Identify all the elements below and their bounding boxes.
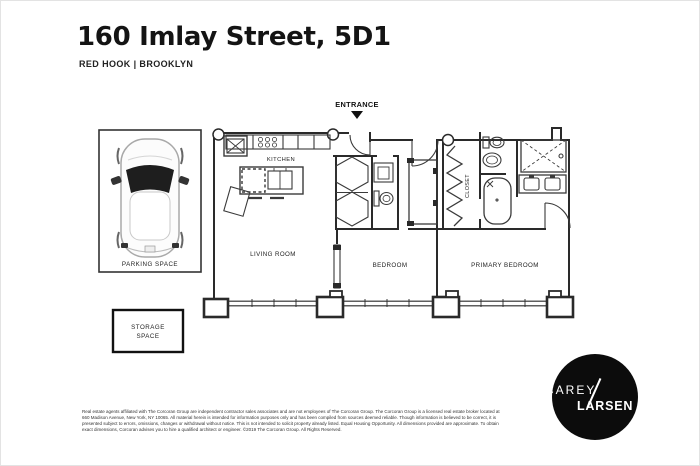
logo-line2: LARSEN: [577, 399, 633, 413]
shower: [521, 140, 566, 172]
disclaimer-line: exact dimensions, Corcoran advises you t…: [82, 427, 500, 433]
bifold-closet-top: [336, 157, 368, 191]
bedroom-label: BEDROOM: [373, 262, 408, 269]
bedroom-door: [412, 140, 438, 166]
floorplan-page: 160 Imlay Street, 5D1 RED HOOK | BROOKLY…: [0, 0, 700, 466]
entrance-door: [350, 135, 370, 155]
primary-bath-fixtures: [483, 137, 566, 224]
car-top-view-illustration: [110, 139, 189, 257]
disclaimer-line: presented subject to errors, omissions, …: [82, 421, 500, 427]
hanging-closet-rod: [447, 146, 462, 226]
parking-space: PARKING SPACE: [99, 130, 201, 272]
storage-space-label-line1: STORAGE: [131, 324, 165, 331]
windshield: [126, 165, 174, 193]
kitchen-fixtures: [224, 135, 330, 216]
apartment-walls: [214, 128, 569, 299]
entrance-arrow-icon: [351, 111, 363, 119]
logo-line1: CAREY: [545, 383, 596, 397]
structural-columns: [204, 291, 573, 317]
pedestal-sink: [483, 153, 501, 167]
double-vanity: [519, 175, 566, 193]
kitchen-label: KITCHEN: [267, 157, 295, 163]
island-double-sink: [268, 168, 292, 189]
parking-space-label: PARKING SPACE: [122, 261, 178, 268]
legal-disclaimer: Real estate agents affiliated with The C…: [82, 409, 500, 433]
toilet: [483, 137, 504, 148]
round-columns: [213, 129, 454, 146]
bathtub: [484, 178, 511, 224]
range-burners: [258, 137, 276, 147]
bifold-closet-bottom: [336, 192, 368, 226]
disclaimer-line: 660 Madison Avenue, New York, NY 10065. …: [82, 415, 500, 421]
closet-label: CLOSET: [465, 174, 471, 198]
bedroom-closet: [407, 158, 437, 226]
hall-bath-toilet: [374, 191, 393, 206]
dishwasher: [224, 187, 250, 217]
primary-bedroom-label: PRIMARY BEDROOM: [471, 262, 539, 269]
storage-space: STORAGE SPACE: [113, 310, 183, 352]
kitchen-sink: [224, 136, 247, 156]
entrance-label: ENTRANCE: [335, 100, 378, 109]
hall-bath-sink: [374, 163, 393, 182]
carey-larsen-logo: CAREY LARSEN: [552, 354, 638, 440]
storage-space-label-line2: SPACE: [136, 333, 159, 340]
primary-bath-door: [545, 203, 570, 228]
kitchen-island: [240, 167, 303, 198]
pocket-door: [333, 245, 341, 288]
living-room-label: LIVING ROOM: [250, 251, 296, 258]
